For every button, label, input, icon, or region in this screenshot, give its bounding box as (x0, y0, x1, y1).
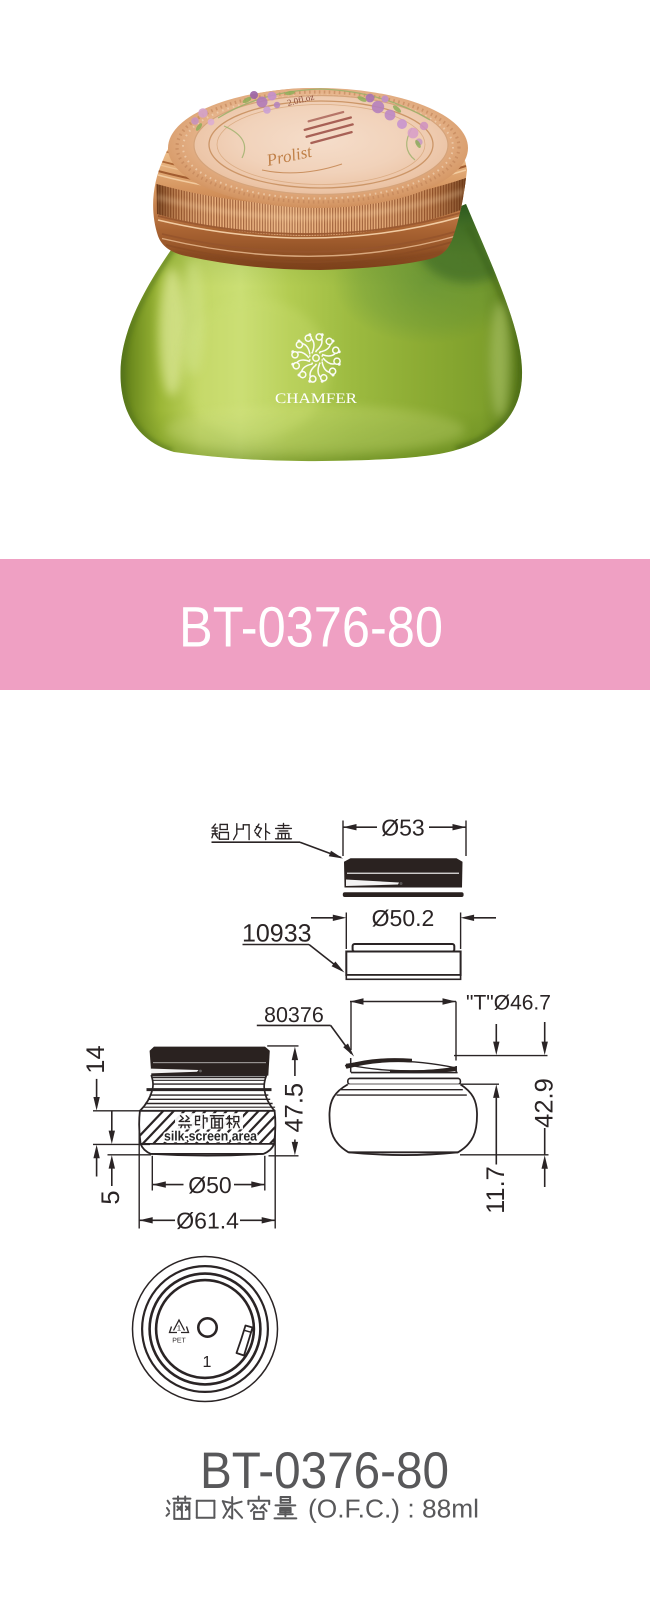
svg-text:14: 14 (82, 1045, 110, 1073)
svg-text:1: 1 (177, 1324, 181, 1333)
svg-text:42.9: 42.9 (531, 1078, 559, 1128)
svg-text:11.7: 11.7 (482, 1166, 510, 1214)
svg-text:Ø50.2: Ø50.2 (372, 905, 435, 931)
svg-text:BT-0376-80: BT-0376-80 (200, 1441, 449, 1499)
svg-text:PET: PET (172, 1338, 186, 1345)
svg-text:80376: 80376 (264, 1003, 324, 1027)
svg-text:CHAMFER: CHAMFER (275, 391, 357, 407)
svg-text:47.5: 47.5 (281, 1083, 309, 1133)
svg-text:10933: 10933 (242, 920, 312, 948)
svg-text:silk-screen area: silk-screen area (164, 1128, 257, 1143)
svg-text:5: 5 (97, 1190, 125, 1204)
svg-text:Ø53: Ø53 (381, 815, 424, 841)
svg-text:Ø50: Ø50 (188, 1172, 231, 1198)
svg-text:(O.F.C.) : 88ml: (O.F.C.) : 88ml (308, 1494, 479, 1524)
svg-text:1: 1 (203, 1354, 212, 1371)
svg-text:"T"Ø46.7: "T"Ø46.7 (466, 991, 551, 1014)
svg-text:BT-0376-80: BT-0376-80 (179, 596, 443, 660)
svg-text:Ø61.4: Ø61.4 (176, 1207, 239, 1233)
